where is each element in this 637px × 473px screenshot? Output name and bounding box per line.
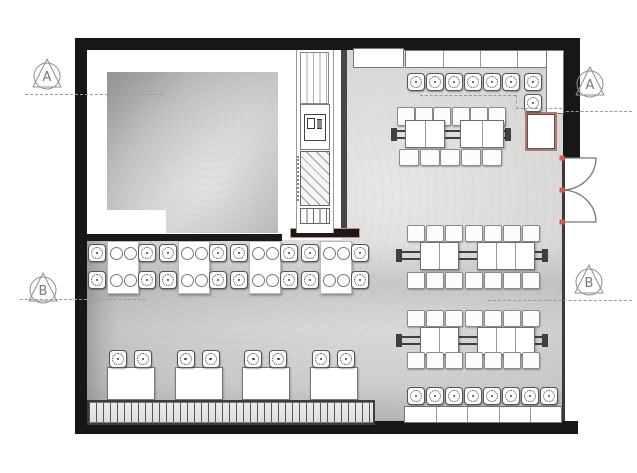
bar-stool bbox=[502, 73, 520, 91]
place-setting bbox=[252, 274, 265, 287]
counter-divider bbox=[443, 51, 444, 67]
stool bbox=[351, 244, 369, 262]
place-setting bbox=[110, 274, 123, 287]
section-marker-a-left: A bbox=[30, 57, 64, 93]
kitchen-counter-block bbox=[87, 210, 166, 234]
chair bbox=[484, 272, 502, 289]
counter-divider bbox=[480, 51, 481, 67]
high-table bbox=[525, 112, 557, 151]
bar-stool bbox=[524, 73, 542, 91]
chair bbox=[484, 352, 502, 369]
counter-divider bbox=[517, 51, 518, 67]
place-setting bbox=[110, 247, 123, 260]
dining-table bbox=[420, 242, 459, 270]
stool bbox=[269, 350, 287, 368]
bar-stool bbox=[445, 73, 463, 91]
bar-stool bbox=[445, 387, 463, 405]
counter-divider bbox=[530, 407, 531, 422]
chair bbox=[503, 225, 521, 242]
bar-stool bbox=[483, 73, 501, 91]
chair bbox=[522, 352, 540, 369]
chair bbox=[399, 149, 419, 166]
bar-stool bbox=[426, 73, 444, 91]
bar-stool bbox=[502, 387, 520, 405]
top-counter-block bbox=[353, 48, 404, 68]
stool bbox=[138, 244, 156, 262]
stool bbox=[280, 244, 298, 262]
place-setting bbox=[195, 274, 208, 287]
chair bbox=[465, 225, 483, 242]
table-cell bbox=[515, 243, 534, 269]
dining-table bbox=[460, 120, 504, 148]
entrance-double-door bbox=[556, 150, 604, 232]
place-setting bbox=[181, 274, 194, 287]
marker-letter: B bbox=[39, 284, 48, 299]
dining-table bbox=[249, 241, 281, 294]
stool bbox=[177, 350, 195, 368]
counter-divider bbox=[436, 407, 437, 422]
table-cell bbox=[496, 243, 515, 269]
stool bbox=[134, 350, 152, 368]
stool bbox=[88, 244, 106, 262]
door-hinge-icon bbox=[560, 188, 565, 193]
section-line bbox=[488, 300, 632, 301]
stool bbox=[202, 350, 220, 368]
chair bbox=[484, 225, 502, 242]
place-setting bbox=[252, 247, 265, 260]
bottom-counter bbox=[404, 406, 562, 423]
station-drawer-unit bbox=[300, 208, 330, 224]
dining-table bbox=[178, 241, 210, 294]
stool bbox=[301, 244, 319, 262]
place-setting bbox=[195, 247, 208, 260]
stool bbox=[159, 271, 177, 289]
chair bbox=[465, 310, 483, 327]
chair bbox=[407, 272, 425, 289]
table-cell bbox=[461, 121, 482, 147]
chair bbox=[426, 352, 444, 369]
dining-table bbox=[107, 241, 139, 294]
bench-seat bbox=[87, 400, 375, 425]
table-cell bbox=[478, 328, 496, 354]
bar-stool bbox=[524, 94, 542, 112]
dining-table bbox=[405, 120, 445, 148]
marker-letter: A bbox=[43, 70, 52, 85]
stool bbox=[138, 271, 156, 289]
chair bbox=[465, 272, 483, 289]
bar-stool bbox=[426, 387, 444, 405]
place-setting bbox=[323, 274, 336, 287]
booth-table bbox=[107, 367, 155, 400]
section-marker-b-right: B bbox=[572, 263, 606, 299]
dining-table bbox=[477, 327, 535, 355]
place-setting bbox=[337, 274, 350, 287]
chair bbox=[420, 149, 440, 166]
table-cell bbox=[439, 328, 458, 354]
door-hinge-icon bbox=[560, 220, 565, 225]
chair bbox=[503, 272, 521, 289]
marker-letter: A bbox=[586, 78, 595, 93]
chair bbox=[445, 225, 463, 242]
section-marker-b-left: B bbox=[26, 271, 60, 307]
stool bbox=[351, 271, 369, 289]
stool bbox=[88, 271, 106, 289]
chair bbox=[503, 352, 521, 369]
station-shelf-unit bbox=[300, 52, 329, 104]
stool bbox=[230, 244, 248, 262]
section-line bbox=[420, 95, 516, 96]
chair bbox=[426, 310, 444, 327]
chair bbox=[482, 149, 502, 166]
chair bbox=[426, 272, 444, 289]
place-setting bbox=[266, 274, 279, 287]
bar-stool bbox=[407, 73, 425, 91]
door-hinge-icon bbox=[560, 156, 565, 161]
bar-stool bbox=[464, 387, 482, 405]
table-cell bbox=[421, 328, 439, 354]
chair bbox=[445, 352, 463, 369]
stool bbox=[209, 244, 227, 262]
table-cell bbox=[439, 243, 458, 269]
place-setting bbox=[124, 274, 137, 287]
chair bbox=[407, 310, 425, 327]
table-cell bbox=[482, 121, 504, 147]
floor-plan-canvas: A B A B bbox=[0, 0, 637, 473]
table-cell bbox=[515, 328, 534, 354]
section-marker-a-right: A bbox=[573, 65, 607, 101]
stool bbox=[109, 350, 127, 368]
chair bbox=[461, 149, 481, 166]
wall-left bbox=[75, 38, 87, 433]
stool bbox=[159, 244, 177, 262]
counter-divider bbox=[499, 407, 500, 422]
glass-display-case bbox=[300, 151, 330, 206]
place-setting bbox=[337, 247, 350, 260]
kitchen-floor bbox=[107, 72, 278, 233]
chair bbox=[484, 310, 502, 327]
place-setting bbox=[323, 247, 336, 260]
booth-table bbox=[242, 367, 290, 400]
chair bbox=[522, 310, 540, 327]
table-cell bbox=[421, 243, 439, 269]
top-counter bbox=[405, 50, 555, 68]
stool bbox=[301, 271, 319, 289]
chair bbox=[407, 225, 425, 242]
chair bbox=[503, 310, 521, 327]
section-line bbox=[25, 94, 163, 95]
chair bbox=[522, 272, 540, 289]
chair bbox=[465, 352, 483, 369]
place-setting bbox=[124, 247, 137, 260]
cash-register-icon bbox=[304, 114, 326, 141]
table-cell bbox=[496, 328, 515, 354]
marker-letter: B bbox=[585, 276, 594, 291]
counter-divider bbox=[467, 407, 468, 422]
place-setting bbox=[266, 247, 279, 260]
place-setting bbox=[181, 247, 194, 260]
dining-table bbox=[420, 327, 459, 355]
booth-table bbox=[310, 367, 358, 400]
section-line bbox=[516, 95, 517, 109]
chair bbox=[407, 352, 425, 369]
stool bbox=[337, 350, 355, 368]
dining-table bbox=[320, 241, 352, 294]
table-cell bbox=[478, 243, 496, 269]
chair bbox=[440, 149, 460, 166]
chair bbox=[522, 225, 540, 242]
bar-stool bbox=[464, 73, 482, 91]
chair bbox=[445, 272, 463, 289]
kitchen-front-counter bbox=[87, 234, 282, 241]
bar-stool bbox=[407, 387, 425, 405]
bar-stool bbox=[483, 387, 501, 405]
dining-table bbox=[477, 242, 535, 270]
partition-wall bbox=[341, 50, 347, 233]
stool bbox=[244, 350, 262, 368]
section-line bbox=[516, 108, 562, 109]
table-cell bbox=[425, 121, 445, 147]
stool bbox=[312, 350, 330, 368]
stool bbox=[280, 271, 298, 289]
chair bbox=[445, 310, 463, 327]
bar-stool bbox=[540, 387, 558, 405]
table-cell bbox=[406, 121, 425, 147]
corner-counter bbox=[546, 50, 564, 114]
stool bbox=[230, 271, 248, 289]
chair bbox=[426, 225, 444, 242]
booth-table bbox=[175, 367, 223, 400]
section-line bbox=[566, 111, 632, 112]
wall-top bbox=[75, 38, 580, 50]
stool bbox=[209, 271, 227, 289]
bar-stool bbox=[521, 387, 539, 405]
